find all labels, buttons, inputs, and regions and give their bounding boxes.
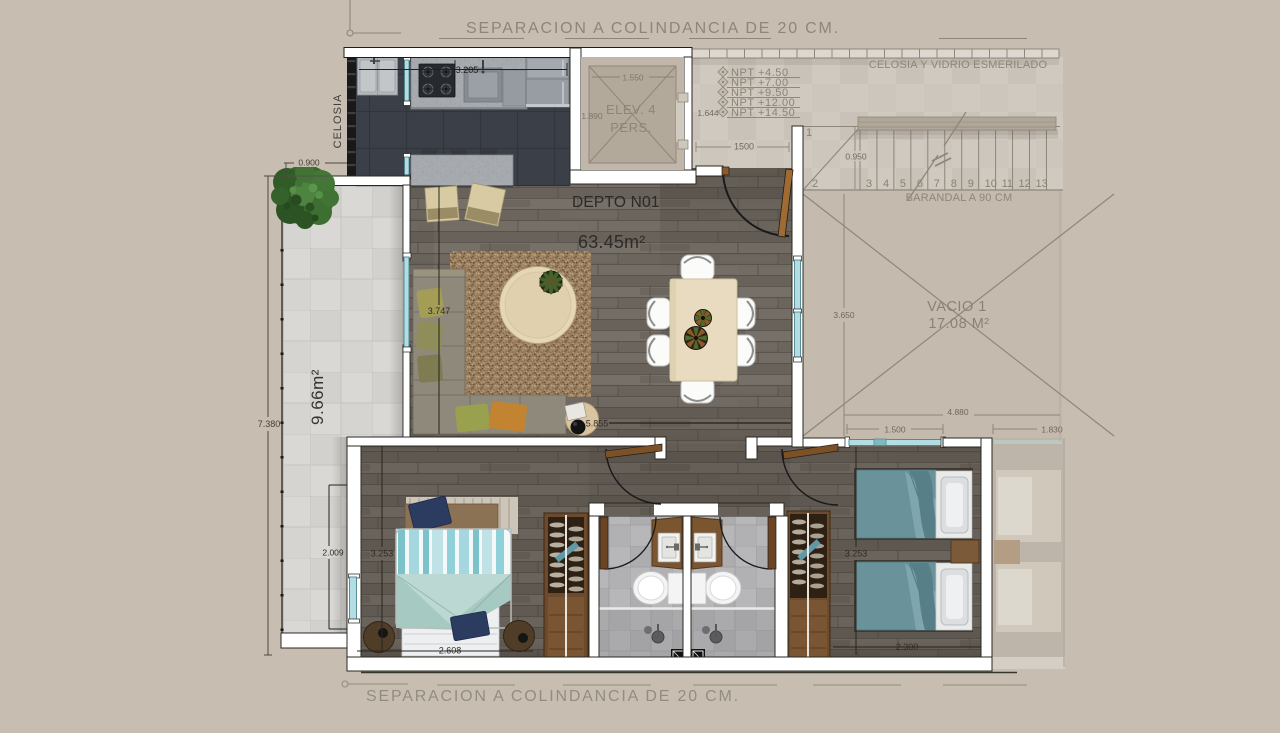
svg-text:3.253: 3.253 bbox=[371, 549, 394, 559]
svg-text:3.650: 3.650 bbox=[833, 310, 855, 320]
svg-text:VACIO 1: VACIO 1 bbox=[927, 299, 987, 315]
svg-text:12: 12 bbox=[1019, 178, 1031, 190]
svg-text:9: 9 bbox=[968, 178, 974, 190]
svg-text:PERS.: PERS. bbox=[610, 120, 652, 135]
svg-text:1.644: 1.644 bbox=[697, 108, 719, 118]
svg-text:7.380: 7.380 bbox=[258, 419, 281, 429]
svg-text:3.253: 3.253 bbox=[845, 549, 868, 559]
svg-text:3.747: 3.747 bbox=[428, 306, 451, 316]
svg-text:ELEV. 4: ELEV. 4 bbox=[606, 102, 656, 117]
svg-text:2.608: 2.608 bbox=[439, 646, 462, 656]
svg-text:2: 2 bbox=[812, 178, 818, 190]
svg-text:7: 7 bbox=[934, 178, 940, 190]
svg-text:17.08 M²: 17.08 M² bbox=[928, 316, 989, 332]
svg-text:4.880: 4.880 bbox=[947, 407, 969, 417]
svg-text:13: 13 bbox=[1036, 178, 1048, 190]
svg-text:1.890: 1.890 bbox=[581, 111, 603, 121]
svg-text:0.950: 0.950 bbox=[845, 152, 867, 162]
svg-text:5.855: 5.855 bbox=[586, 419, 609, 429]
svg-text:3.205: 3.205 bbox=[456, 65, 479, 75]
svg-text:SEPARACION A COLINDANCIA DE 20: SEPARACION A COLINDANCIA DE 20 CM. bbox=[466, 20, 840, 37]
svg-text:63.45m²: 63.45m² bbox=[578, 232, 645, 252]
svg-text:8: 8 bbox=[951, 178, 957, 190]
svg-text:3: 3 bbox=[866, 178, 872, 190]
svg-text:DEPTO N01: DEPTO N01 bbox=[572, 194, 660, 211]
svg-text:4: 4 bbox=[883, 178, 889, 190]
svg-text:BARANDAL A 90 CM: BARANDAL A 90 CM bbox=[906, 192, 1013, 204]
svg-text:0.900: 0.900 bbox=[298, 158, 320, 168]
svg-text:2.300: 2.300 bbox=[896, 642, 919, 652]
svg-text:2.009: 2.009 bbox=[322, 548, 344, 558]
svg-text:1500: 1500 bbox=[734, 142, 754, 152]
svg-text:CELOSIA: CELOSIA bbox=[332, 94, 344, 149]
svg-text:1: 1 bbox=[806, 127, 812, 139]
svg-text:1.550: 1.550 bbox=[622, 73, 644, 83]
svg-text:10: 10 bbox=[985, 178, 997, 190]
svg-text:SEPARACION A COLINDANCIA DE 20: SEPARACION A COLINDANCIA DE 20 CM. bbox=[366, 688, 740, 705]
svg-text:5: 5 bbox=[900, 178, 906, 190]
svg-text:11: 11 bbox=[1002, 178, 1013, 190]
svg-text:CELOSIA Y VIDRIO ESMERILADO: CELOSIA Y VIDRIO ESMERILADO bbox=[869, 59, 1048, 71]
svg-text:9.66m²: 9.66m² bbox=[308, 369, 327, 425]
svg-text:1.500: 1.500 bbox=[884, 425, 906, 435]
svg-text:1.830: 1.830 bbox=[1041, 425, 1063, 435]
